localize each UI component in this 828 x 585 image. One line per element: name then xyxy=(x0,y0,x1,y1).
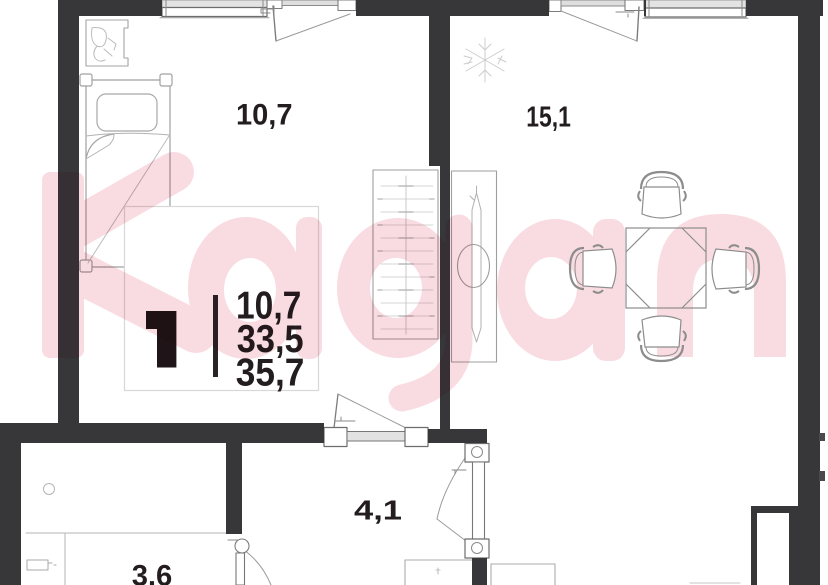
svg-text:4,1: 4,1 xyxy=(354,495,402,526)
svg-text:15,1: 15,1 xyxy=(526,102,571,134)
svg-text:10,7: 10,7 xyxy=(236,99,293,132)
svg-text:3,6: 3,6 xyxy=(132,559,173,585)
